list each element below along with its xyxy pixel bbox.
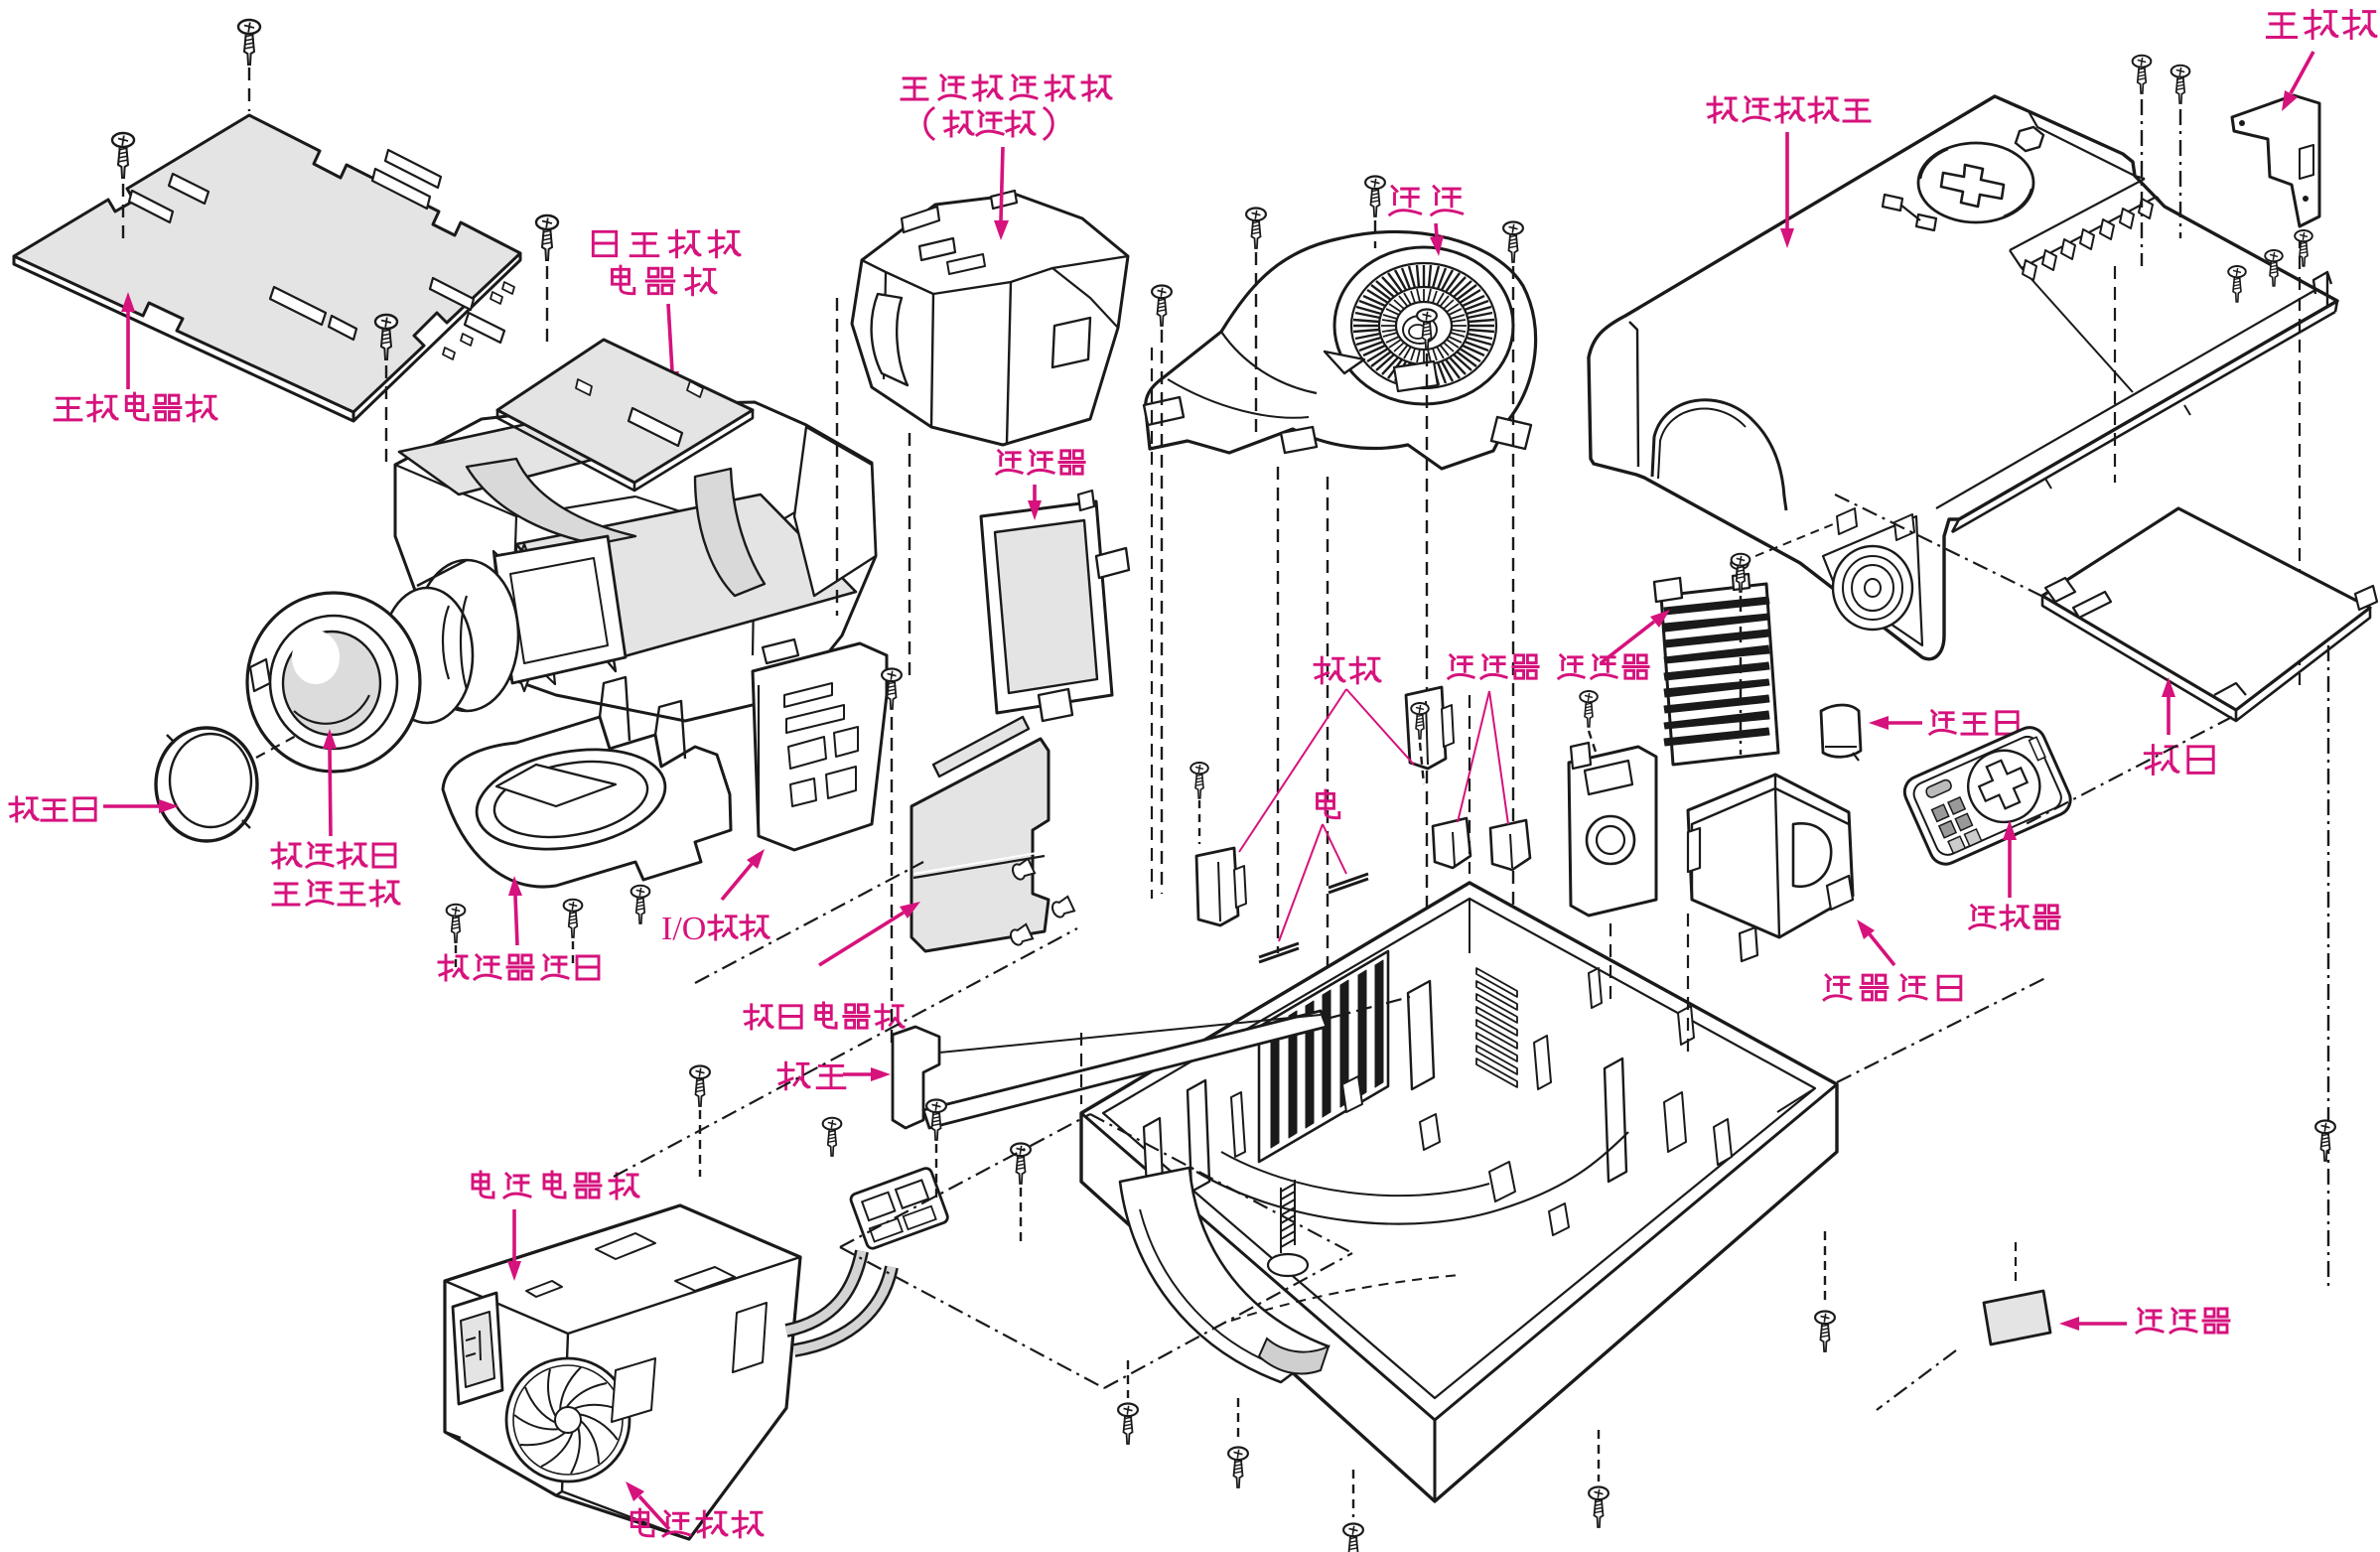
svg-text:I/O: I/O xyxy=(661,911,706,947)
